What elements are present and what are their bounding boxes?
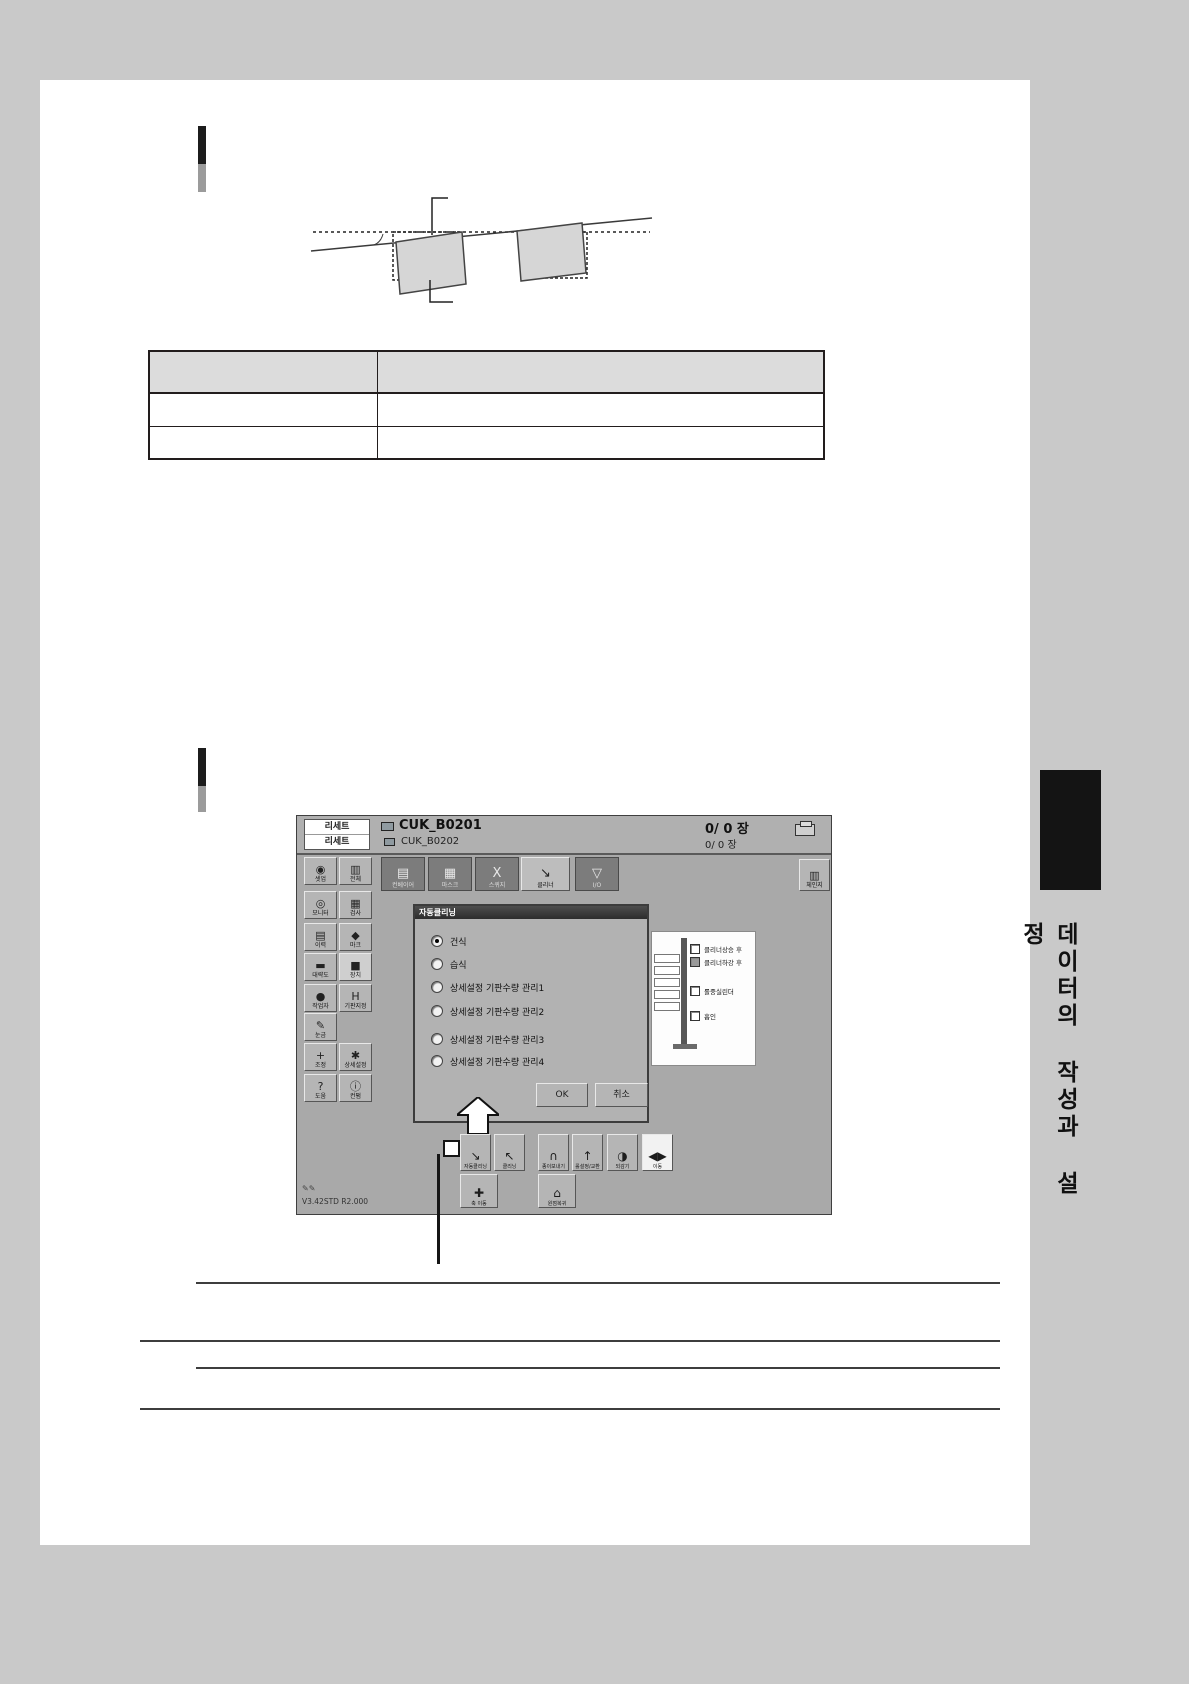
roll-slat (654, 990, 680, 999)
section2-marker-shadow (198, 786, 206, 812)
history-icon: ▤ (315, 929, 325, 942)
sidebar-item-all[interactable]: ▥전체 (339, 857, 372, 885)
sidebar-item-confirm[interactable]: ⓘ컨펌 (339, 1074, 372, 1102)
chapter-tab-marker (1040, 770, 1101, 890)
tab-io[interactable]: ▽I/O (575, 857, 619, 891)
table-header-row (150, 352, 823, 394)
radio-icon[interactable] (431, 935, 443, 947)
checkbox-icon[interactable] (690, 944, 700, 954)
clean-icon: ↖ (504, 1149, 514, 1164)
ok-button[interactable]: OK (536, 1083, 588, 1107)
chapter-title-vertical: 데이터의 작성과 설정 (1044, 922, 1082, 1202)
settings-icon: ✱ (351, 1049, 360, 1062)
left-right-icon: ◀▶ (648, 1149, 666, 1164)
sidebar-item-operator[interactable]: ●작업자 (304, 984, 337, 1012)
auto-cleaning-dialog: 자동클리닝 건식 습식 상세설정 기판수량 관리1 상세설정 기판수량 관리2 … (413, 904, 649, 1123)
radio-icon[interactable] (431, 981, 443, 993)
reference-table (148, 350, 825, 460)
layout-icon: ▬ (315, 959, 325, 972)
tab-cleaner[interactable]: ↘클리너 (521, 857, 570, 891)
software-version: V3.42STD R2.000 (302, 1197, 368, 1206)
note-rule (140, 1408, 1000, 1410)
rewind-button[interactable]: ◑되감기 (607, 1134, 638, 1171)
sidebar-item-setup[interactable]: ◉셋업 (304, 857, 337, 885)
checkbox-icon[interactable] (690, 957, 700, 967)
manual-page: 리세트 리세트 CUK_B0201 CUK_B0202 0/ 0 장 0/ 0 … (0, 0, 1189, 1684)
callout-up-arrow (457, 1097, 499, 1134)
machine-ui-screenshot: 리세트 리세트 CUK_B0201 CUK_B0202 0/ 0 장 0/ 0 … (296, 815, 832, 1215)
home-icon: ⌂ (553, 1186, 561, 1201)
checkbox-icon[interactable] (690, 986, 700, 996)
sidebar-item-adjust[interactable]: +조정 (304, 1043, 337, 1071)
rewind-icon: ◑ (617, 1149, 627, 1164)
program-icon-small (384, 838, 395, 846)
cleaner-icon: ↘ (540, 866, 551, 882)
radio-option-wet[interactable]: 습식 (431, 957, 467, 971)
mask-icon: ▦ (444, 866, 456, 882)
move-button[interactable]: ◀▶이동 (642, 1134, 673, 1171)
conveyor-icon: ▤ (397, 866, 409, 882)
board-icon: H (351, 990, 359, 1003)
adjust-icon: + (316, 1049, 325, 1062)
table-column-divider (377, 352, 378, 458)
cleaner-schematic-panel: 클리너상승 후 클리너하강 후 롤중실린더 흡인 (651, 931, 756, 1066)
roll-slat (654, 1002, 680, 1011)
printer-icon (795, 824, 815, 836)
cleaner-stand-base (673, 1044, 697, 1049)
cleaner-stand (681, 938, 687, 1044)
axis-arrows-icon: ✚ (474, 1186, 484, 1201)
section1-marker-shadow (198, 164, 206, 192)
inspect-icon: ▦ (350, 897, 360, 910)
paper-roll-icon: ∩ (549, 1149, 558, 1164)
home-return-button[interactable]: ⌂원점복귀 (538, 1174, 576, 1208)
change-button[interactable]: ▥ 체인지 (799, 859, 830, 891)
section2-marker (198, 748, 206, 786)
tab-mask[interactable]: ▦마스크 (428, 857, 472, 891)
program-name-front: CUK_B0201 (399, 818, 482, 833)
note-rule (196, 1282, 1000, 1284)
board-skew-diagram (290, 185, 710, 310)
table-row (150, 427, 823, 458)
sidebar-item-scale[interactable]: ✎눈금 (304, 1013, 337, 1041)
change-icon: ▥ (809, 869, 819, 882)
section1-marker (198, 126, 206, 164)
device-icon: ■ (350, 959, 360, 972)
checkbox-icon[interactable] (690, 1011, 700, 1021)
radio-option-dry[interactable]: 건식 (431, 934, 467, 948)
roll-up-icon: ↑ (582, 1149, 592, 1164)
paper-feed-button[interactable]: ∩종이보내기 (538, 1134, 569, 1171)
radio-icon[interactable] (431, 1033, 443, 1045)
axis-move-button[interactable]: ✚축 이동 (460, 1174, 498, 1208)
radio-icon[interactable] (431, 958, 443, 970)
radio-icon[interactable] (431, 1005, 443, 1017)
program-name-rear: CUK_B0202 (401, 836, 459, 847)
sheet-counter-front: 0/ 0 장 (705, 818, 749, 837)
pen-icon: ✎ (316, 1019, 325, 1032)
radio-option-detail4[interactable]: 상세설정 기판수량 관리4 (431, 1054, 544, 1068)
note-rule (196, 1367, 1000, 1369)
sheet-counter-rear: 0/ 0 장 (705, 836, 737, 851)
reset-button-stack[interactable]: 리세트 리세트 (304, 819, 370, 850)
squeegee-icon: X (493, 866, 502, 882)
dialog-title: 자동클리닝 (415, 906, 647, 919)
tab-conveyor[interactable]: ▤컨베이어 (381, 857, 425, 891)
checkbox-cleaner-up[interactable]: 클리너상승 후 (690, 942, 742, 955)
panel-icon: ▥ (350, 863, 360, 876)
sidebar-item-layout[interactable]: ▬대략도 (304, 953, 337, 981)
io-icon: ▽ (592, 866, 602, 882)
cleaning-button[interactable]: ↖클리닝 (494, 1134, 525, 1171)
info-icon: ⓘ (350, 1080, 361, 1093)
reset-button[interactable]: 리세트 (305, 820, 369, 835)
checkbox-suction[interactable]: 흡인 (690, 1009, 716, 1022)
cancel-button[interactable]: 취소 (595, 1083, 648, 1107)
sidebar-item-inspect[interactable]: ▦검사 (339, 891, 372, 919)
checkbox-roll-cylinder[interactable]: 롤중실린더 (690, 984, 734, 997)
mark-icon: ◆ (351, 929, 359, 942)
radio-option-detail3[interactable]: 상세설정 기판수량 관리3 (431, 1032, 544, 1046)
sidebar-item-help[interactable]: ?도움 (304, 1074, 337, 1102)
edit-pen-icons: ✎✎ (302, 1184, 315, 1193)
sidebar-item-device[interactable]: ■장치 (339, 953, 372, 981)
reset-button[interactable]: 리세트 (305, 835, 369, 849)
roll-slat (654, 966, 680, 975)
radio-option-detail1[interactable]: 상세설정 기판수량 관리1 (431, 980, 544, 994)
radio-option-detail2[interactable]: 상세설정 기판수량 관리2 (431, 1004, 544, 1018)
auto-cleaning-button[interactable]: ↘자동클리닝 (460, 1134, 491, 1171)
roll-slat (654, 978, 680, 987)
tab-squeegee[interactable]: X스퀴지 (475, 857, 519, 891)
table-row (150, 394, 823, 427)
program-icon (381, 822, 394, 831)
radio-icon[interactable] (431, 1055, 443, 1067)
callout-line (437, 1154, 440, 1264)
help-icon: ? (318, 1080, 324, 1093)
sidebar-item-mark[interactable]: ◆마크 (339, 923, 372, 951)
status-header: 리세트 리세트 CUK_B0201 CUK_B0202 0/ 0 장 0/ 0 … (297, 816, 831, 855)
operator-icon: ● (316, 990, 326, 1003)
sidebar-item-monitor[interactable]: ◎모니터 (304, 891, 337, 919)
sidebar-item-board-select[interactable]: H기판지정 (339, 984, 372, 1012)
auto-clean-icon: ↘ (470, 1149, 480, 1164)
checkbox-cleaner-down[interactable]: 클리너하강 후 (690, 955, 742, 968)
note-rule (140, 1340, 1000, 1342)
roll-slat (654, 954, 680, 963)
sidebar-item-history[interactable]: ▤이력 (304, 923, 337, 951)
roll-setup-button[interactable]: ↑롤설정/교환 (572, 1134, 603, 1171)
sidebar-item-detail-settings[interactable]: ✱상세설정 (339, 1043, 372, 1071)
monitor-icon: ◎ (316, 897, 326, 910)
callout-anchor-box (443, 1140, 460, 1157)
setup-icon: ◉ (316, 863, 326, 876)
